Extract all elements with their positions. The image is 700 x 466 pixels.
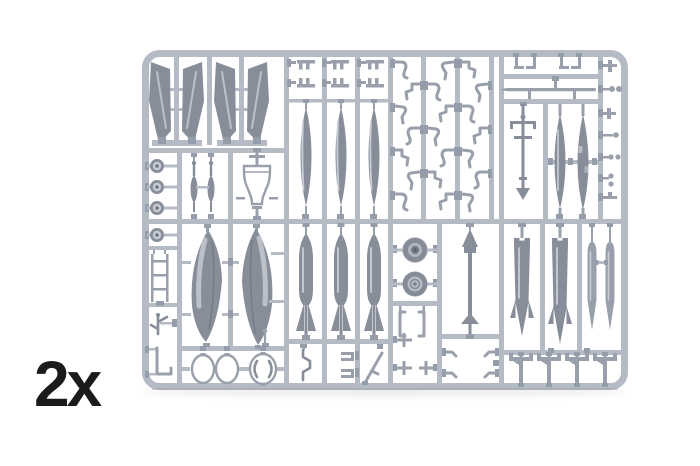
bracket-clip bbox=[287, 78, 315, 88]
fork-part bbox=[341, 351, 359, 361]
bomb bbox=[364, 233, 384, 339]
bracket-clip bbox=[287, 59, 315, 70]
zigzag-part bbox=[300, 344, 310, 380]
dart-missile-part bbox=[442, 223, 499, 377]
slim-missile bbox=[606, 242, 615, 330]
gun-strut-parts bbox=[191, 153, 215, 219]
slim-missile bbox=[588, 242, 597, 330]
disc-part bbox=[150, 159, 164, 173]
wheel bbox=[403, 238, 428, 263]
bracket-clip bbox=[357, 78, 384, 88]
kit-sprue-photo: 2x bbox=[0, 0, 700, 466]
boarding-ladder-part bbox=[151, 250, 169, 306]
funnel-outline-part bbox=[236, 148, 278, 220]
bracket-clips-top bbox=[287, 59, 384, 88]
disc-part bbox=[150, 228, 164, 242]
quantity-label: 2x bbox=[34, 348, 103, 420]
tail-fin-half bbox=[149, 62, 171, 144]
bottom-middle-small-parts bbox=[300, 344, 383, 385]
corner-hook-parts bbox=[442, 348, 499, 377]
bracket-part bbox=[399, 306, 425, 336]
narrow-blade bbox=[555, 114, 566, 209]
pylon bbox=[565, 352, 589, 387]
bomb-parts bbox=[296, 223, 384, 340]
fork-part bbox=[341, 368, 359, 378]
antenna-pin-part bbox=[151, 313, 177, 334]
cross-part bbox=[393, 333, 437, 375]
narrow-blade bbox=[578, 114, 589, 210]
tail-fin-half bbox=[214, 62, 236, 144]
sprue-illustration: 2x bbox=[0, 0, 700, 466]
diagonal-rod-part bbox=[362, 344, 383, 385]
tail-fin-half bbox=[247, 62, 269, 144]
wheel-parts bbox=[393, 238, 437, 376]
bracket-clip bbox=[357, 59, 384, 70]
drop-tank-half bbox=[192, 230, 222, 342]
pylon-parts bbox=[509, 352, 617, 387]
ring-frame-parts bbox=[182, 346, 284, 386]
round-discs bbox=[145, 159, 177, 242]
long-rod-part bbox=[500, 76, 596, 99]
disc-part bbox=[150, 201, 164, 215]
left-strip-parts bbox=[145, 159, 177, 378]
slim-missile-parts bbox=[588, 223, 615, 330]
ring-frame bbox=[216, 355, 238, 383]
slender-blade-parts bbox=[301, 99, 380, 219]
small-pin-part bbox=[262, 329, 269, 347]
disc-part bbox=[150, 180, 164, 194]
ring-frame bbox=[192, 355, 214, 383]
pylon bbox=[509, 352, 533, 387]
pylon bbox=[593, 352, 617, 387]
wheel bbox=[403, 272, 428, 297]
finned-rocket bbox=[510, 238, 534, 336]
finned-rocket bbox=[548, 238, 572, 344]
hook-lever-parts bbox=[390, 59, 492, 211]
antenna-mast-part bbox=[510, 102, 536, 200]
bomb bbox=[296, 233, 316, 339]
pylon bbox=[537, 352, 561, 387]
tail-fin-half bbox=[182, 62, 204, 144]
bomb bbox=[331, 233, 351, 339]
